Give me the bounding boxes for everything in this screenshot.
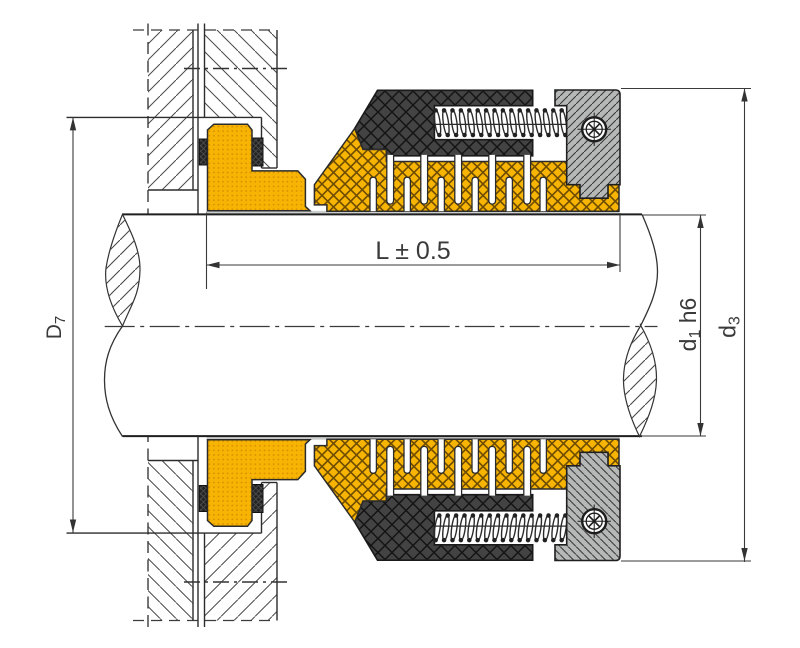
svg-text:d1 h6: d1 h6 [675, 298, 704, 352]
svg-text:L ± 0.5: L ± 0.5 [375, 237, 450, 265]
